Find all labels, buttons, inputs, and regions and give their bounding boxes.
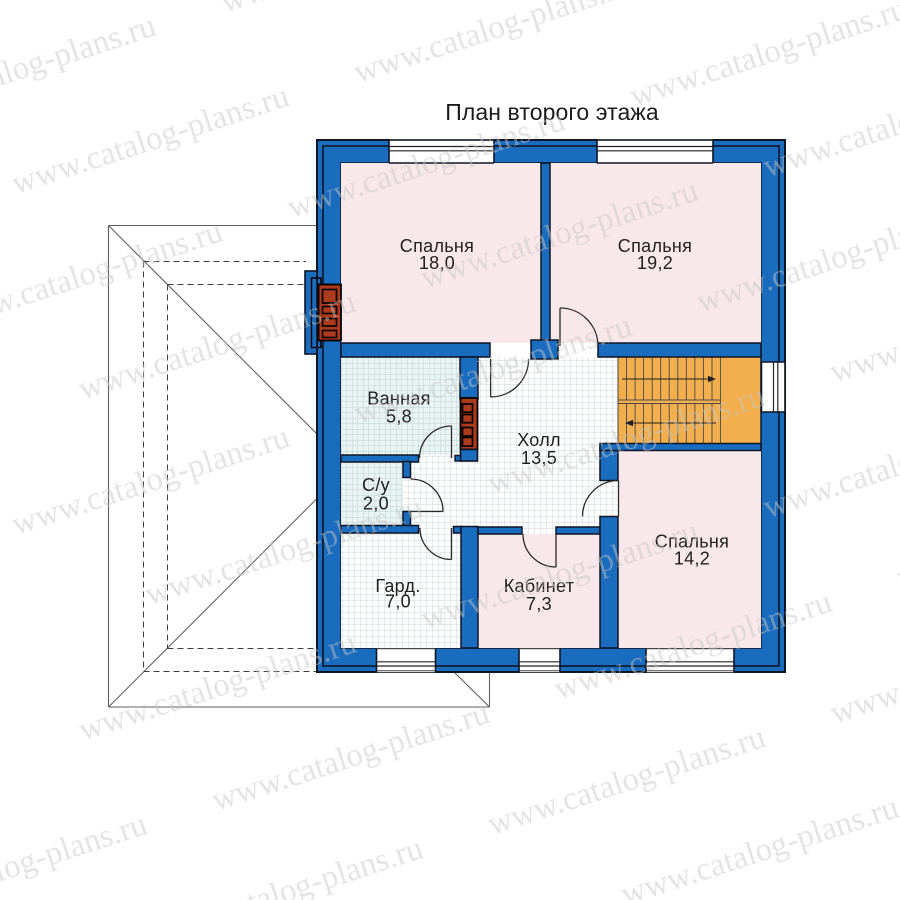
svg-text:7,0: 7,0 xyxy=(385,592,411,612)
svg-text:19,2: 19,2 xyxy=(637,253,673,273)
svg-text:С/у: С/у xyxy=(362,475,390,495)
